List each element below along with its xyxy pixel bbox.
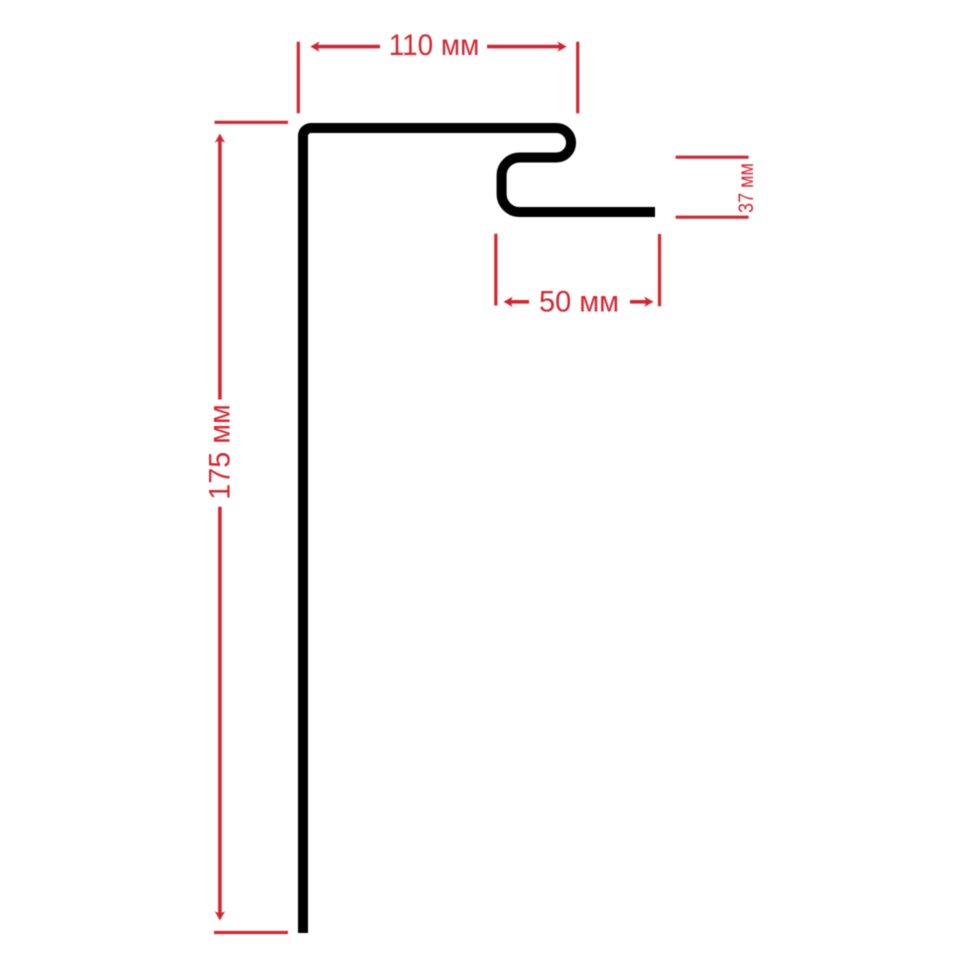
svg-text:37 мм: 37 мм — [734, 163, 758, 213]
svg-text:110 мм: 110 мм — [389, 29, 480, 62]
svg-text:175 мм: 175 мм — [203, 404, 237, 500]
svg-text:50 мм: 50 мм — [539, 285, 619, 319]
